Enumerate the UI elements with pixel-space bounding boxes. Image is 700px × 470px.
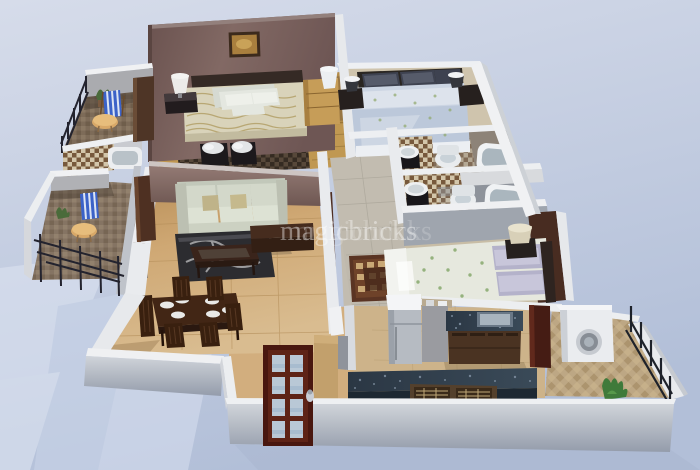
svg-text:magicbricks: magicbricks [295, 216, 432, 247]
